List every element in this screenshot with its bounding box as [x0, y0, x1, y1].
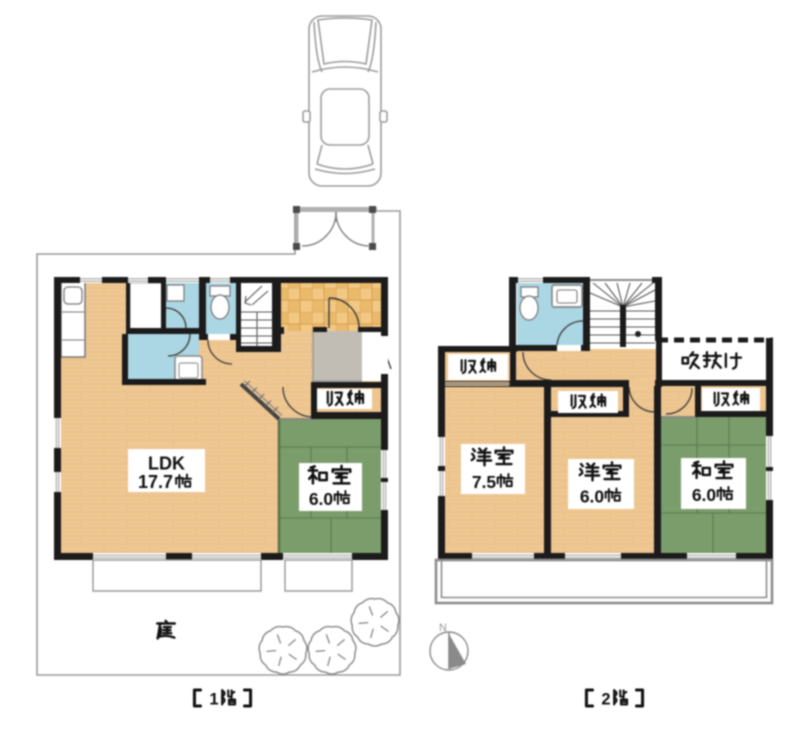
svg-text:1: 1 — [209, 691, 218, 709]
svg-text:6.0: 6.0 — [692, 485, 717, 505]
svg-text:7.5: 7.5 — [472, 472, 497, 492]
svg-text:LDK: LDK — [148, 454, 185, 474]
svg-text:2: 2 — [601, 691, 610, 709]
svg-text:6.0: 6.0 — [580, 487, 605, 507]
svg-text:N: N — [439, 622, 447, 634]
svg-text:17.7: 17.7 — [138, 472, 173, 492]
svg-text:6.0: 6.0 — [309, 489, 334, 509]
